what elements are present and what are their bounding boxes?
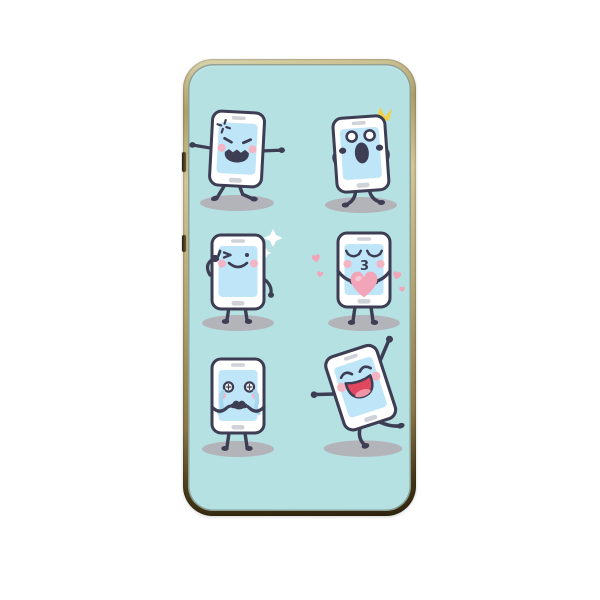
ground-shadow <box>202 315 274 331</box>
sparkle-icon <box>264 229 283 247</box>
angry-phone-figure <box>186 110 286 206</box>
crying-phone-figure <box>212 359 264 451</box>
heart-icon <box>317 271 324 278</box>
phone-character-crying <box>178 347 298 467</box>
phone-character-winking <box>178 221 298 341</box>
ground-shadow <box>202 441 274 457</box>
phone-character-shocked <box>301 105 421 225</box>
dancing-phone-figure <box>301 335 423 460</box>
heart-icon <box>399 287 405 292</box>
heart-icon <box>311 254 321 263</box>
ground-shadow <box>325 197 397 213</box>
ground-shadow <box>200 195 274 211</box>
ground-shadow <box>328 315 400 331</box>
product-image: 3 <box>0 0 600 600</box>
heart-icon <box>392 271 402 280</box>
phone-character-kissing: 3 <box>304 221 424 341</box>
winking-phone-figure <box>207 235 274 324</box>
phone-character-angry <box>177 100 297 220</box>
phone-case: 3 <box>183 59 416 516</box>
shocked-phone-figure <box>331 115 392 208</box>
kissing-phone-figure: 3 <box>338 233 390 325</box>
kiss-mouth-glyph: 3 <box>360 259 369 274</box>
phone-character-dancing <box>299 337 423 461</box>
